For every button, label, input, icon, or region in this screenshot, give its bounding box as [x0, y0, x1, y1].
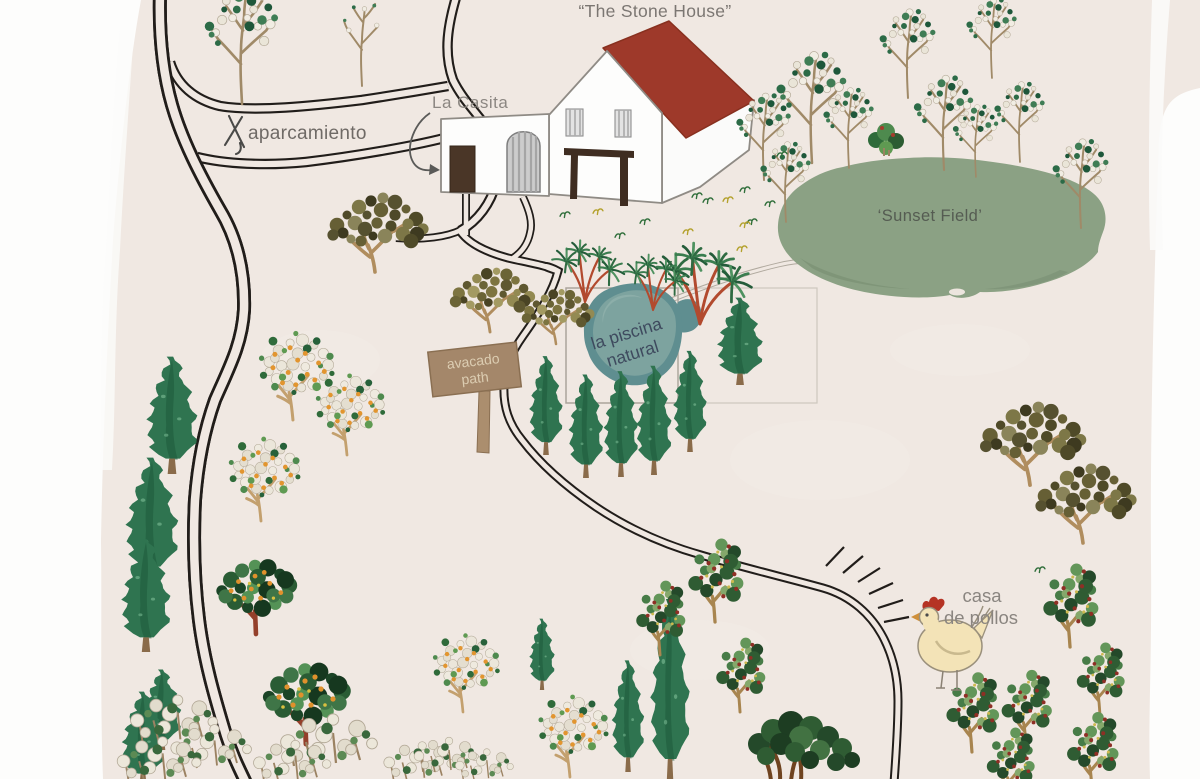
svg-text:“The Stone House”: “The Stone House” [579, 1, 732, 21]
svg-text:casa: casa [962, 585, 1002, 606]
svg-text:La Casita: La Casita [432, 93, 508, 112]
svg-text:aparcamiento: aparcamiento [248, 123, 367, 144]
svg-text:de pollos: de pollos [944, 607, 1018, 628]
svg-text:‘Sunset Field’: ‘Sunset Field’ [878, 207, 983, 225]
svg-text:path: path [461, 368, 490, 387]
